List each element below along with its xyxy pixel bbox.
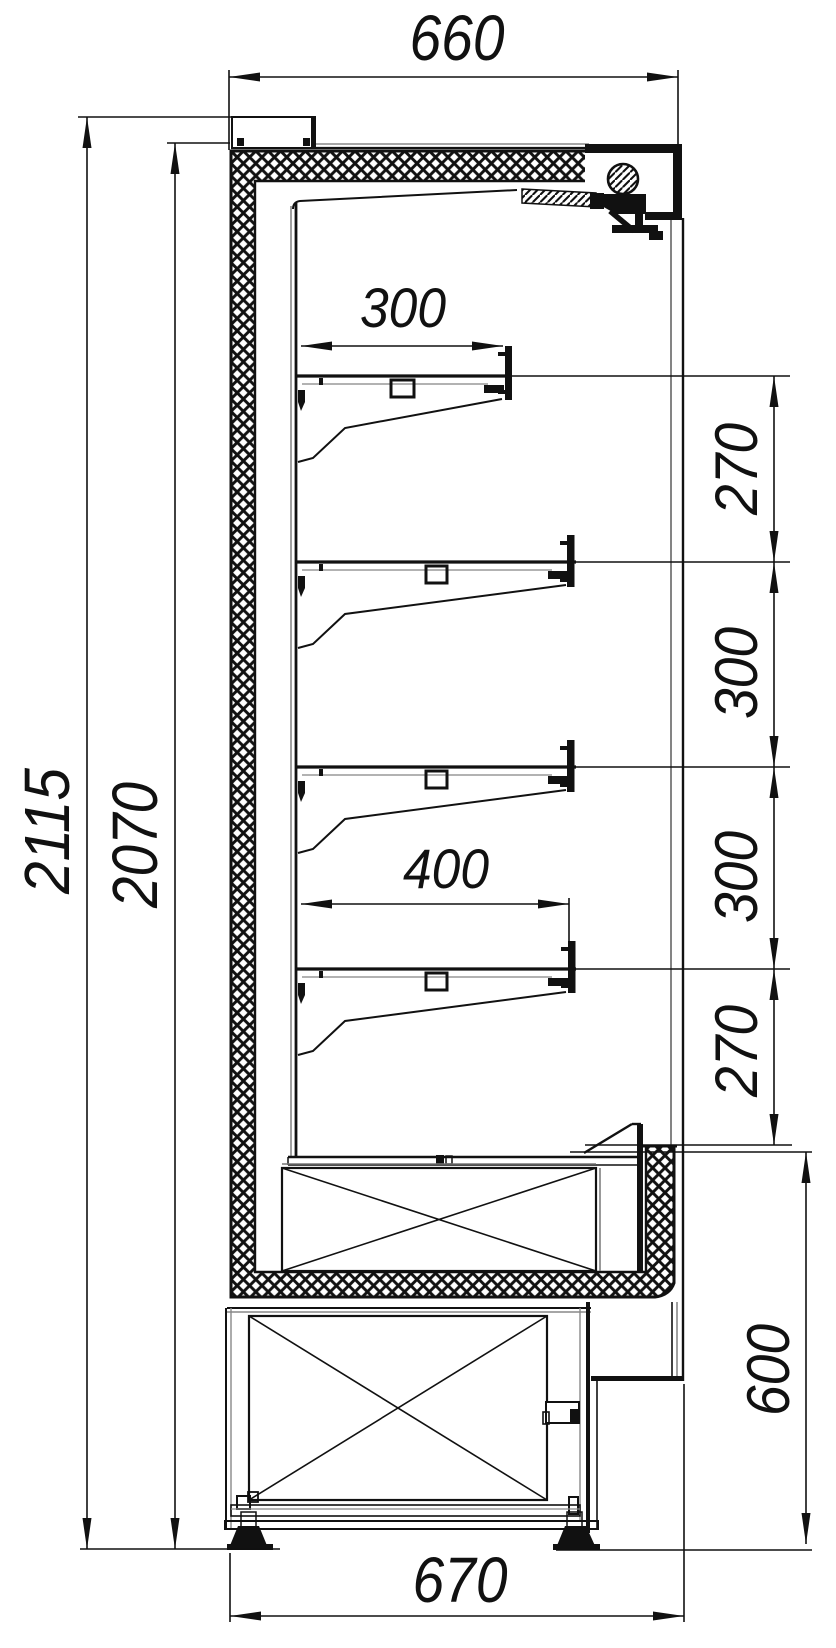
svg-text:400: 400 bbox=[403, 837, 489, 900]
svg-text:2115: 2115 bbox=[11, 768, 83, 895]
svg-text:2070: 2070 bbox=[99, 782, 171, 909]
svg-text:270: 270 bbox=[703, 1005, 770, 1098]
svg-text:300: 300 bbox=[703, 627, 770, 719]
svg-text:600: 600 bbox=[735, 1324, 802, 1416]
svg-text:270: 270 bbox=[703, 423, 770, 516]
svg-text:660: 660 bbox=[410, 2, 505, 74]
svg-text:300: 300 bbox=[703, 831, 770, 923]
svg-text:670: 670 bbox=[413, 1544, 508, 1616]
svg-text:300: 300 bbox=[360, 276, 446, 339]
